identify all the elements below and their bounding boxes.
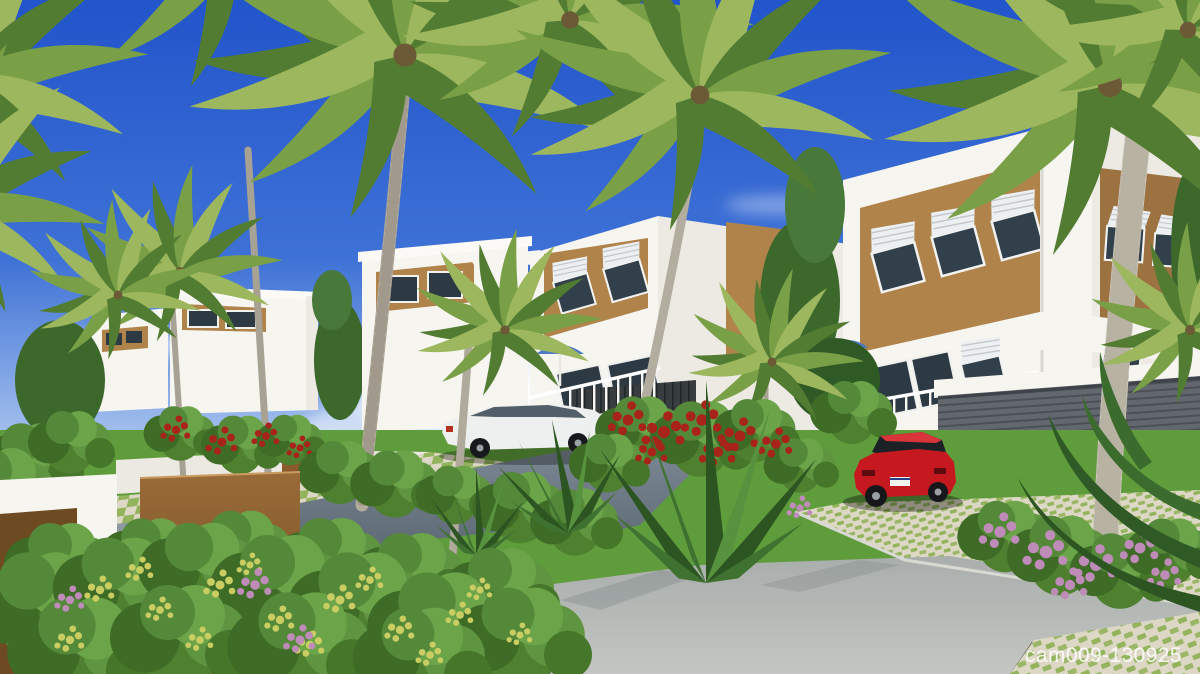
rendering-canvas xyxy=(0,0,1200,674)
architectural-rendering: cam009-130925 xyxy=(0,0,1200,674)
watermark-label: cam009-130925 xyxy=(1025,644,1182,668)
